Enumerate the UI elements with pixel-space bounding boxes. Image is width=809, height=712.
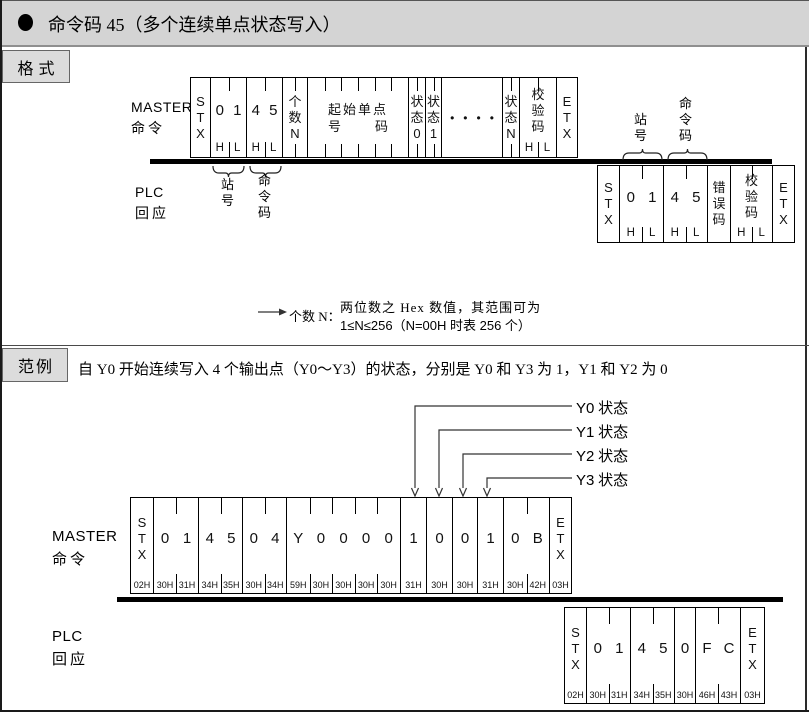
cell-char: 0 bbox=[377, 530, 400, 547]
cell-char: 态 bbox=[410, 110, 423, 126]
cell-content: ETX bbox=[557, 78, 577, 157]
note-lead: 个数 N： bbox=[289, 306, 341, 325]
cell-char: X bbox=[571, 657, 580, 673]
hex-row: 30H bbox=[675, 689, 695, 703]
section-divider bbox=[2, 345, 809, 346]
brace-label-char: 站 bbox=[634, 112, 647, 128]
cell-char: 验 bbox=[745, 189, 758, 205]
hex-row: 46H43H bbox=[696, 689, 740, 703]
cell-char: 1 bbox=[229, 102, 247, 119]
hex-row: 30H31H bbox=[587, 689, 630, 703]
section-header-bar: 命令码 45（多个连续单点状态写入） bbox=[2, 0, 809, 47]
cell-char: 号 bbox=[328, 118, 341, 135]
cell-char: 1 bbox=[176, 530, 198, 547]
frame-cell: Y000059H30H30H30H30H bbox=[286, 497, 401, 594]
hex-value: 31H bbox=[176, 579, 198, 593]
cell-char: X bbox=[604, 212, 613, 228]
cell-content: 04 bbox=[243, 498, 286, 579]
note-arrow-icon bbox=[258, 306, 288, 318]
hex-value: 30H bbox=[675, 689, 695, 703]
manual-page: 命令码 45（多个连续单点状态写入） 格式 MASTER 命令 PLC 回应 S… bbox=[0, 0, 809, 712]
hex-value: 31H bbox=[609, 689, 631, 703]
cell-char: 校 bbox=[745, 173, 758, 189]
hex-row: 31H bbox=[478, 579, 503, 593]
format-master-frame: STX01HL45HL个数N起始单点号码状态0状态1••••状态N校验码HLET… bbox=[190, 77, 578, 158]
cell-char: 4 bbox=[265, 530, 287, 547]
frame-cell: 030H bbox=[674, 607, 696, 704]
hex-value: 59H bbox=[287, 579, 310, 593]
station-label-2: 站号 bbox=[634, 112, 647, 144]
cell-char: 数 bbox=[288, 110, 301, 126]
bullet-icon bbox=[18, 14, 33, 31]
cell-content: 状态1 bbox=[426, 78, 441, 157]
cell-char: X bbox=[138, 547, 147, 563]
frame-cell: 01HL bbox=[210, 77, 247, 158]
cell-char: T bbox=[197, 110, 205, 126]
cell-char: 验 bbox=[531, 103, 544, 119]
frame-cell: 状态0 bbox=[408, 77, 426, 158]
cell-char: 1 bbox=[401, 530, 426, 547]
brace-label-char: 令 bbox=[679, 112, 692, 128]
cell-content: 0 bbox=[453, 498, 477, 579]
brace-label-char: 令 bbox=[258, 189, 271, 205]
hex-row: 31H bbox=[401, 579, 426, 593]
cell-content: 01 bbox=[587, 608, 630, 689]
hex-value: 31H bbox=[478, 579, 503, 593]
hex-value: 30H bbox=[504, 579, 527, 593]
cell-char: 0 bbox=[675, 640, 695, 657]
cell-content: 01 bbox=[154, 498, 198, 579]
cell-char: 0 bbox=[504, 530, 527, 547]
cell-content: FC bbox=[696, 608, 740, 689]
frame-cell: 01HL bbox=[619, 165, 664, 243]
hex-row: 03H bbox=[550, 579, 571, 593]
hex-row: 03H bbox=[741, 689, 764, 703]
hl-char: H bbox=[247, 141, 265, 157]
cell-content: STX bbox=[565, 608, 586, 689]
hl-divider bbox=[642, 227, 643, 242]
hex-row: 34H35H bbox=[199, 579, 242, 593]
hl-char: L bbox=[752, 226, 773, 242]
example-master-frame: STX02H0130H31H4534H35H0430H34HY000059H30… bbox=[130, 497, 572, 594]
brace-label-char: 码 bbox=[679, 128, 692, 144]
cell-char: 4 bbox=[247, 102, 265, 119]
cell-content: ETX bbox=[741, 608, 764, 689]
pointer-lines bbox=[407, 398, 577, 502]
cell-char: 状 bbox=[410, 94, 423, 110]
hex-value: 42H bbox=[527, 579, 550, 593]
frame-cell: ETX03H bbox=[549, 497, 572, 594]
cell-char: 1 bbox=[478, 530, 503, 547]
hex-row: 30H bbox=[453, 579, 477, 593]
cell-content: 状态N bbox=[503, 78, 519, 157]
hl-char: H bbox=[731, 226, 752, 242]
cell-content: STX bbox=[598, 166, 619, 242]
cell-char: X bbox=[779, 212, 788, 228]
cell-char: 5 bbox=[686, 189, 708, 206]
cell-char: F bbox=[696, 640, 718, 657]
hl-char: H bbox=[620, 226, 642, 242]
hex-value: 30H bbox=[243, 579, 265, 593]
example-master-label: MASTER 命令 bbox=[52, 528, 118, 569]
hl-char: L bbox=[229, 141, 247, 157]
hl-char: L bbox=[686, 226, 708, 242]
frame-cell: 030H bbox=[452, 497, 478, 594]
frame-cell: FC46H43H bbox=[695, 607, 741, 704]
hex-value: 34H bbox=[199, 579, 221, 593]
hl-divider bbox=[265, 142, 266, 157]
hex-value: 30H bbox=[427, 579, 452, 593]
cell-content: 01 bbox=[211, 78, 246, 143]
hex-row: 02H bbox=[565, 689, 586, 703]
frame-cell: 错误码 bbox=[707, 165, 731, 243]
hex-value: 43H bbox=[718, 689, 740, 703]
cell-char: E bbox=[556, 515, 565, 531]
cell-char: S bbox=[604, 180, 613, 196]
hex-value: 03H bbox=[550, 579, 571, 593]
hex-value: 30H bbox=[587, 689, 609, 703]
cell-char: 码 bbox=[745, 205, 758, 221]
cell-content: 0 bbox=[427, 498, 452, 579]
frame-cell: STX02H bbox=[564, 607, 587, 704]
cell-char: 态 bbox=[504, 110, 517, 126]
hex-row: 30H bbox=[427, 579, 452, 593]
frame-cell: STX02H bbox=[130, 497, 154, 594]
note-line1: 两位数之 Hex 数值，其范围可为 bbox=[340, 297, 541, 316]
cell-char: T bbox=[780, 196, 788, 212]
cell-content: 0 bbox=[675, 608, 695, 689]
frame-cell: 45HL bbox=[246, 77, 283, 158]
hl-char: L bbox=[538, 141, 556, 157]
example-plc-frame: STX02H0130H31H4534H35H030HFC46H43HETX03H bbox=[564, 607, 765, 704]
frame-cell: 0130H31H bbox=[586, 607, 631, 704]
cell-char: T bbox=[563, 110, 571, 126]
hex-value: 30H bbox=[154, 579, 176, 593]
cell-char: 状 bbox=[504, 94, 517, 110]
hex-value: 02H bbox=[131, 579, 153, 593]
cell-char: 0 bbox=[413, 126, 420, 142]
page-border-right bbox=[805, 0, 807, 712]
hl-char: L bbox=[265, 141, 283, 157]
brace-label-char: 号 bbox=[221, 193, 234, 209]
hex-value: 34H bbox=[631, 689, 653, 703]
frame-cell: STX bbox=[190, 77, 211, 158]
frame-cell: 4534H35H bbox=[630, 607, 675, 704]
station-label: 站号 bbox=[221, 177, 234, 209]
cell-char: T bbox=[138, 531, 146, 547]
hl-char: H bbox=[211, 141, 229, 157]
cell-content: 错误码 bbox=[708, 166, 730, 242]
brace-label-char: 码 bbox=[258, 205, 271, 221]
cell-char: T bbox=[557, 531, 565, 547]
cell-content: 45 bbox=[199, 498, 242, 579]
format-tab-label: 格式 bbox=[2, 50, 70, 83]
cell-char: 个 bbox=[288, 94, 301, 110]
frame-cell: 45HL bbox=[663, 165, 708, 243]
cell-content: 起始单点号码 bbox=[308, 78, 408, 157]
cell-content: 状态0 bbox=[409, 78, 425, 157]
cell-char: 0 bbox=[620, 189, 642, 206]
cell-char: B bbox=[527, 530, 550, 547]
cell-char: 0 bbox=[154, 530, 176, 547]
hex-row: 34H35H bbox=[631, 689, 674, 703]
cell-char: T bbox=[572, 641, 580, 657]
cell-content: 01 bbox=[620, 166, 663, 228]
frame-cell: ETX bbox=[556, 77, 578, 158]
frame-cell: 030H bbox=[426, 497, 453, 594]
hex-value: 46H bbox=[696, 689, 718, 703]
cell-content: STX bbox=[191, 78, 210, 157]
pointer-label-y2: Y2 状态 bbox=[576, 445, 628, 463]
cell-content: 45 bbox=[247, 78, 282, 143]
frame-cell: STX bbox=[597, 165, 620, 243]
cell-char: 1 bbox=[430, 126, 437, 142]
example-plc-label: PLC 回应 bbox=[52, 628, 88, 669]
cell-char: 校 bbox=[531, 87, 544, 103]
cell-content: 1 bbox=[401, 498, 426, 579]
example-baseline bbox=[117, 597, 783, 602]
cell-content: 校验码 bbox=[731, 166, 772, 228]
hex-row: 02H bbox=[131, 579, 153, 593]
frame-cell: 起始单点号码 bbox=[307, 77, 409, 158]
hex-value: 30H bbox=[377, 579, 400, 593]
cell-char: 4 bbox=[199, 530, 221, 547]
hex-value: 30H bbox=[332, 579, 355, 593]
hex-value: 30H bbox=[453, 579, 477, 593]
frame-cell: 状态1 bbox=[425, 77, 442, 158]
cell-text: 起始单点 bbox=[308, 101, 408, 118]
frame-cell: 0430H34H bbox=[242, 497, 287, 594]
cell-char: C bbox=[718, 640, 740, 657]
cell-char: X bbox=[748, 657, 757, 673]
cell-content: ETX bbox=[550, 498, 571, 579]
cell-content: STX bbox=[131, 498, 153, 579]
brace-label-char: 命 bbox=[679, 96, 692, 112]
frame-cell: 131H bbox=[477, 497, 504, 594]
cell-char: S bbox=[196, 94, 205, 110]
cell-content: 45 bbox=[631, 608, 674, 689]
cell-char: 0 bbox=[453, 530, 477, 547]
note-line2: 1≤N≤256（N=00H 时表 256 个） bbox=[340, 315, 531, 334]
hex-row: 30H34H bbox=[243, 579, 286, 593]
cell-char: 状 bbox=[427, 94, 440, 110]
cell-char: 1 bbox=[642, 189, 664, 206]
cell-char: 0 bbox=[211, 102, 229, 119]
frame-cell: 0B30H42H bbox=[503, 497, 550, 594]
cell-content: Y0000 bbox=[287, 498, 400, 579]
cell-char: 误 bbox=[712, 196, 725, 212]
cell-char: X bbox=[563, 126, 572, 142]
cell-char: S bbox=[138, 515, 147, 531]
hl-divider bbox=[686, 227, 687, 242]
cell-char: X bbox=[196, 126, 205, 142]
brace-label-char: 号 bbox=[634, 128, 647, 144]
cell-char: E bbox=[563, 94, 572, 110]
hl-char: H bbox=[664, 226, 686, 242]
hl-divider bbox=[752, 227, 753, 242]
hex-value: 03H bbox=[741, 689, 764, 703]
page-title: 命令码 45（多个连续单点状态写入） bbox=[48, 11, 341, 37]
cell-content: ETX bbox=[773, 166, 794, 242]
cell-char: T bbox=[749, 641, 757, 657]
pointer-label-y0: Y0 状态 bbox=[576, 397, 628, 415]
hex-row: 30H31H bbox=[154, 579, 198, 593]
frame-cell: 131H bbox=[400, 497, 427, 594]
cell-content: 45 bbox=[664, 166, 707, 228]
hex-row: 59H30H30H30H30H bbox=[287, 579, 400, 593]
cell-char: T bbox=[605, 196, 613, 212]
example-tab-label: 范例 bbox=[2, 348, 68, 382]
cell-content: 校验码 bbox=[520, 78, 556, 143]
cell-char: Y bbox=[287, 530, 310, 547]
hl-divider bbox=[229, 142, 230, 157]
cell-char: 4 bbox=[631, 640, 653, 657]
cell-char: 码 bbox=[375, 118, 388, 135]
hl-char: H bbox=[520, 141, 538, 157]
frame-cell: •••• bbox=[441, 77, 503, 158]
cell-char: E bbox=[748, 625, 757, 641]
format-plc-label: PLC 回应 bbox=[135, 184, 169, 223]
cell-char: 4 bbox=[664, 189, 686, 206]
pointer-label-y3: Y3 状态 bbox=[576, 469, 628, 487]
cell-content: 0B bbox=[504, 498, 549, 579]
hex-value: 35H bbox=[653, 689, 675, 703]
cell-char: 0 bbox=[310, 530, 333, 547]
cell-content: 1 bbox=[478, 498, 503, 579]
hl-divider bbox=[538, 142, 539, 157]
cell-char: N bbox=[290, 126, 299, 142]
frame-cell: 校验码HL bbox=[730, 165, 773, 243]
frame-cell: 4534H35H bbox=[198, 497, 243, 594]
brace-label-char: 站 bbox=[221, 177, 234, 193]
cell-char: X bbox=[556, 547, 565, 563]
cell-char: E bbox=[779, 180, 788, 196]
pointer-label-y1: Y1 状态 bbox=[576, 421, 628, 439]
hex-value: 35H bbox=[221, 579, 243, 593]
cell-char: 5 bbox=[221, 530, 243, 547]
cell-char: 码 bbox=[712, 212, 725, 228]
cell-char: 0 bbox=[587, 640, 609, 657]
frame-cell: 个数N bbox=[282, 77, 308, 158]
format-plc-frame: STX01HL45HL错误码校验码HLETX bbox=[597, 165, 795, 243]
command-code-label: 命令码 bbox=[258, 173, 271, 221]
cell-char: 5 bbox=[653, 640, 675, 657]
cell-char: S bbox=[571, 625, 580, 641]
frame-cell: 状态N bbox=[502, 77, 520, 158]
hex-value: 02H bbox=[565, 689, 586, 703]
cell-char: 0 bbox=[427, 530, 452, 547]
cell-char: 态 bbox=[427, 110, 440, 126]
hex-value: 34H bbox=[265, 579, 287, 593]
format-master-label: MASTER 命令 bbox=[131, 99, 192, 138]
cell-char: 0 bbox=[355, 530, 378, 547]
cell-text: 号码 bbox=[308, 118, 408, 135]
frame-cell: ETX03H bbox=[740, 607, 765, 704]
hex-value: 31H bbox=[401, 579, 426, 593]
brace-label-char: 命 bbox=[258, 173, 271, 189]
frame-cell: ETX bbox=[772, 165, 795, 243]
example-description: 自 Y0 开始连续写入 4 个输出点（Y0～Y3）的状态，分别是 Y0 和 Y3… bbox=[78, 358, 668, 379]
command-code-label-2: 命令码 bbox=[679, 96, 692, 144]
cell-content: •••• bbox=[442, 78, 502, 157]
frame-cell: 0130H31H bbox=[153, 497, 199, 594]
cell-char: 1 bbox=[609, 640, 631, 657]
cell-char: N bbox=[506, 126, 515, 142]
hex-value: 30H bbox=[355, 579, 378, 593]
cell-char: 0 bbox=[332, 530, 355, 547]
frame-cell: 校验码HL bbox=[519, 77, 557, 158]
hex-value: 30H bbox=[310, 579, 333, 593]
hex-row: 30H42H bbox=[504, 579, 549, 593]
cell-char: 0 bbox=[243, 530, 265, 547]
cell-char: 码 bbox=[531, 119, 544, 135]
hl-char: L bbox=[642, 226, 664, 242]
cell-char: 错 bbox=[712, 180, 725, 196]
cell-content: 个数N bbox=[283, 78, 307, 157]
cell-char: 5 bbox=[265, 102, 283, 119]
